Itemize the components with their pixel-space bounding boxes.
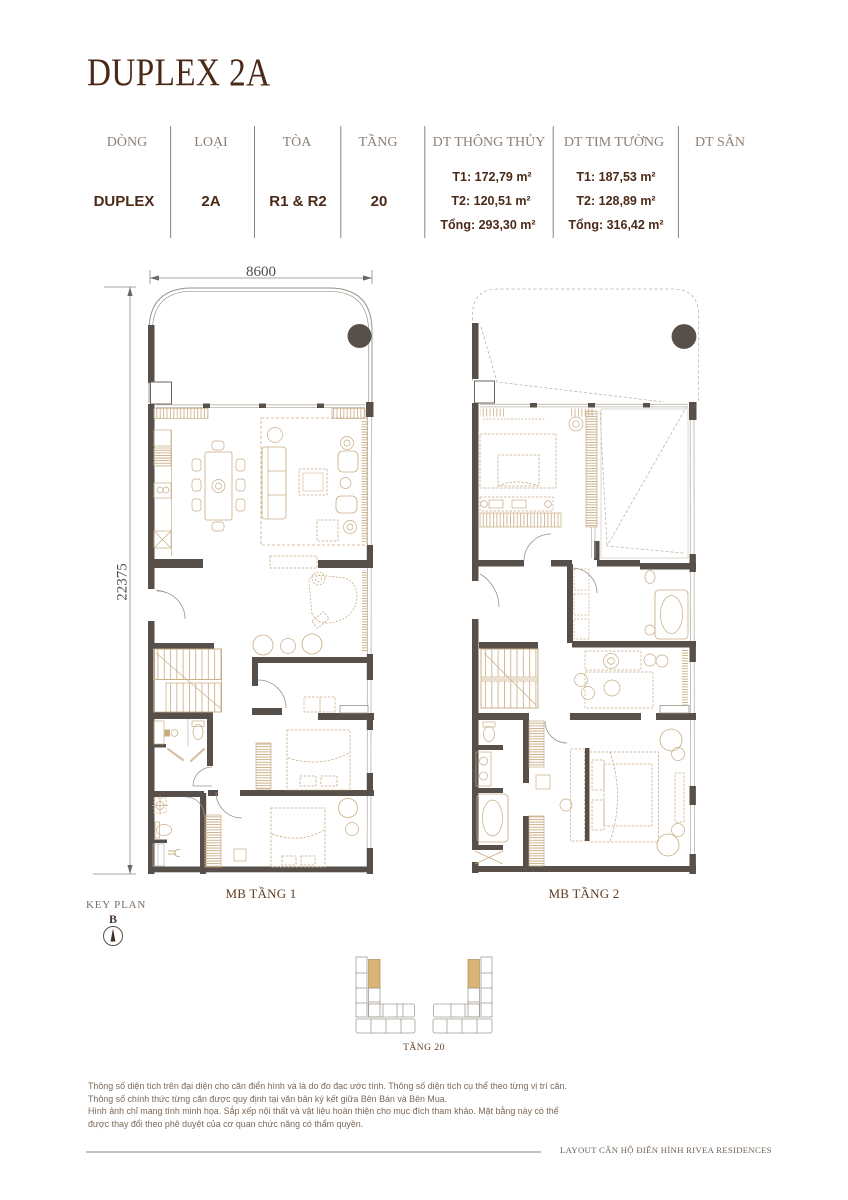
svg-text:R1 & R2: R1 & R2	[269, 193, 327, 210]
svg-text:TẦNG: TẦNG	[359, 133, 398, 150]
svg-text:MB TẦNG 2: MB TẦNG 2	[549, 886, 620, 901]
svg-text:Hình ảnh chỉ mang tính minh họ: Hình ảnh chỉ mang tính minh họa. Sắp xếp…	[88, 1106, 559, 1116]
svg-text:TÒA: TÒA	[283, 133, 313, 150]
svg-text:20: 20	[371, 193, 388, 210]
svg-text:8600: 8600	[246, 264, 276, 280]
svg-text:DUPLEX 2A: DUPLEX 2A	[87, 50, 271, 93]
svg-text:MB TẦNG 1: MB TẦNG 1	[226, 886, 297, 901]
svg-text:DT SÂN: DT SÂN	[695, 133, 745, 150]
svg-text:được thay đổi theo phê duyệt c: được thay đổi theo phê duyệt của cơ quan…	[88, 1119, 363, 1129]
svg-text:Thông số chính thức từng căn đ: Thông số chính thức từng căn được quy đị…	[88, 1094, 447, 1104]
svg-text:DT THÔNG THỦY: DT THÔNG THỦY	[433, 133, 546, 150]
svg-text:LOẠI: LOẠI	[194, 135, 228, 150]
svg-text:DÒNG: DÒNG	[107, 133, 147, 150]
svg-text:LAYOUT CĂN HỘ ĐIỂN HÌNH RIVEA: LAYOUT CĂN HỘ ĐIỂN HÌNH RIVEA RESIDENCES	[560, 1145, 772, 1155]
svg-text:T2: 128,89 m²: T2: 128,89 m²	[576, 194, 655, 208]
svg-text:2A: 2A	[201, 193, 220, 210]
svg-text:22375: 22375	[115, 563, 131, 601]
svg-text:Tổng: 293,30 m²: Tổng: 293,30 m²	[440, 218, 535, 232]
svg-text:T1: 172,79 m²: T1: 172,79 m²	[452, 170, 531, 184]
svg-text:T1: 187,53 m²: T1: 187,53 m²	[576, 170, 655, 184]
svg-text:DUPLEX: DUPLEX	[94, 193, 155, 210]
svg-text:Thông số diện tích trên đại di: Thông số diện tích trên đại diện cho căn…	[88, 1081, 567, 1091]
svg-text:T2: 120,51 m²: T2: 120,51 m²	[451, 194, 530, 208]
svg-text:DT TIM TƯỜNG: DT TIM TƯỜNG	[564, 133, 664, 150]
svg-text:Tổng: 316,42 m²: Tổng: 316,42 m²	[568, 218, 663, 232]
svg-text:B: B	[109, 912, 117, 926]
svg-text:KEY PLAN: KEY PLAN	[86, 899, 146, 911]
